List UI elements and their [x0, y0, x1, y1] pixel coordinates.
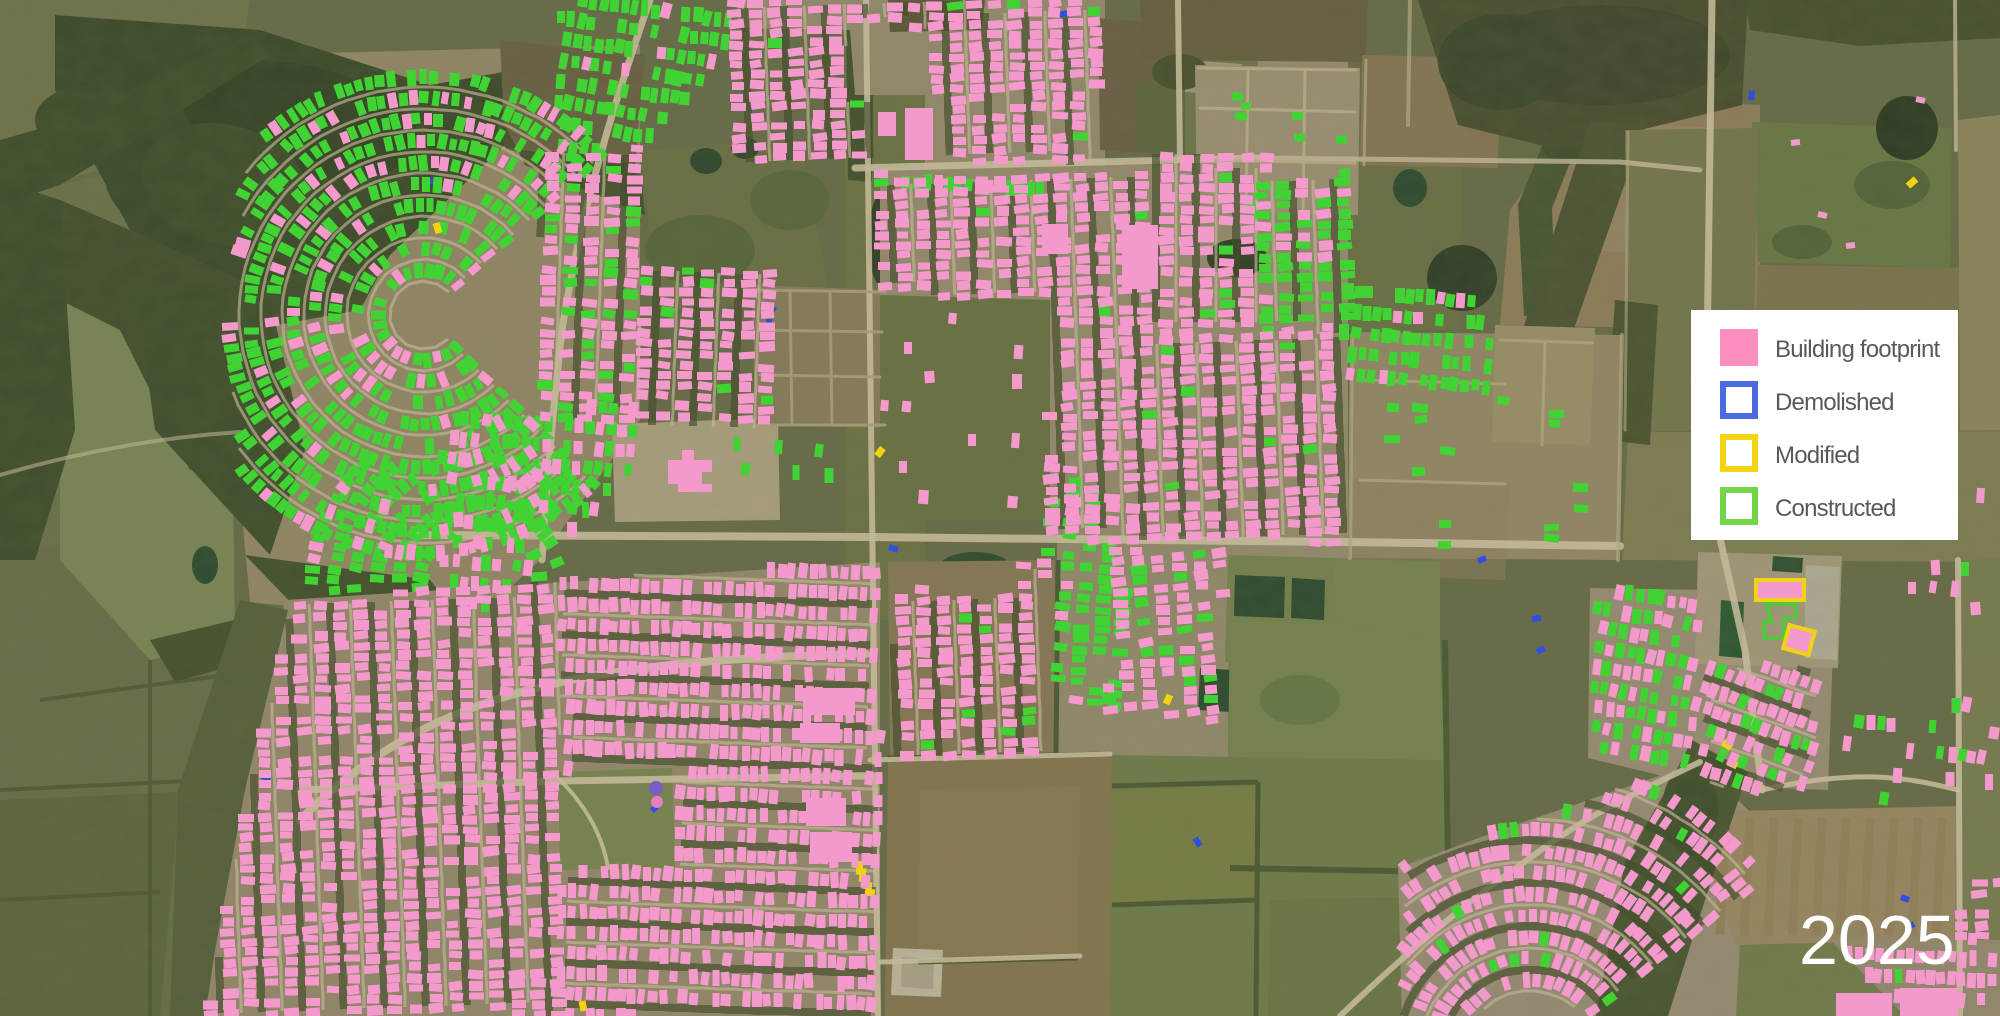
- svg-text:Demolished: Demolished: [1775, 389, 1894, 416]
- svg-text:Modified: Modified: [1775, 442, 1859, 469]
- svg-text:Building footprint: Building footprint: [1775, 336, 1941, 363]
- svg-text:Constructed: Constructed: [1775, 495, 1896, 522]
- svg-text:2025: 2025: [1799, 901, 1955, 979]
